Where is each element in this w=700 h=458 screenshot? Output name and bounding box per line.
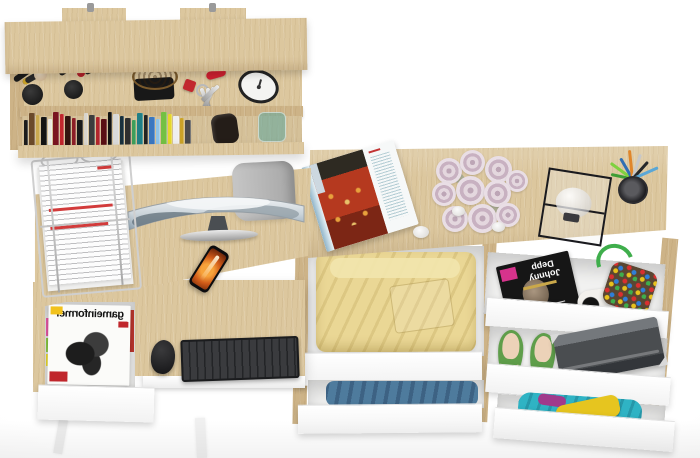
book-spine: [137, 113, 143, 145]
book-spine: [77, 120, 83, 145]
book-spine: [84, 113, 88, 145]
shelf-bottom-board: [18, 142, 304, 158]
book-spine: [36, 115, 40, 145]
wall-shelf: [0, 0, 700, 458]
green-glass-jar: [258, 112, 286, 142]
powder-brush: [22, 84, 43, 105]
book-spine: [48, 119, 52, 145]
book-spine: [60, 114, 64, 145]
book-spine: [173, 116, 179, 145]
book-spine: [65, 116, 71, 145]
book-spine: [132, 120, 136, 145]
shelf-top-board: [5, 18, 308, 74]
dark-pouch: [210, 112, 240, 145]
clock-center-dot: [256, 85, 261, 90]
book-spine: [161, 112, 167, 145]
book-spine: [168, 114, 172, 145]
book-spine: [149, 117, 155, 145]
book-spine: [113, 114, 119, 145]
mount-screw: [87, 3, 94, 12]
book-spine: [108, 112, 112, 145]
book-spine: [24, 120, 28, 145]
book-spine: [72, 118, 76, 145]
powder-brush: [64, 80, 83, 99]
book-spine: [185, 120, 191, 145]
book-spine: [156, 119, 160, 145]
book-spine: [120, 116, 124, 145]
scene: Johnny Depp: [0, 0, 700, 458]
book-spine: [125, 118, 131, 145]
book-spine: [144, 115, 148, 145]
book-spine: [180, 118, 184, 145]
mount-screw: [209, 3, 216, 12]
book-spine: [101, 119, 107, 145]
book-spine: [53, 112, 59, 145]
book-row: [24, 113, 214, 145]
book-spine: [29, 113, 35, 145]
book-spine: [89, 115, 95, 145]
book-spine: [41, 117, 47, 145]
book-spine: [96, 117, 100, 145]
